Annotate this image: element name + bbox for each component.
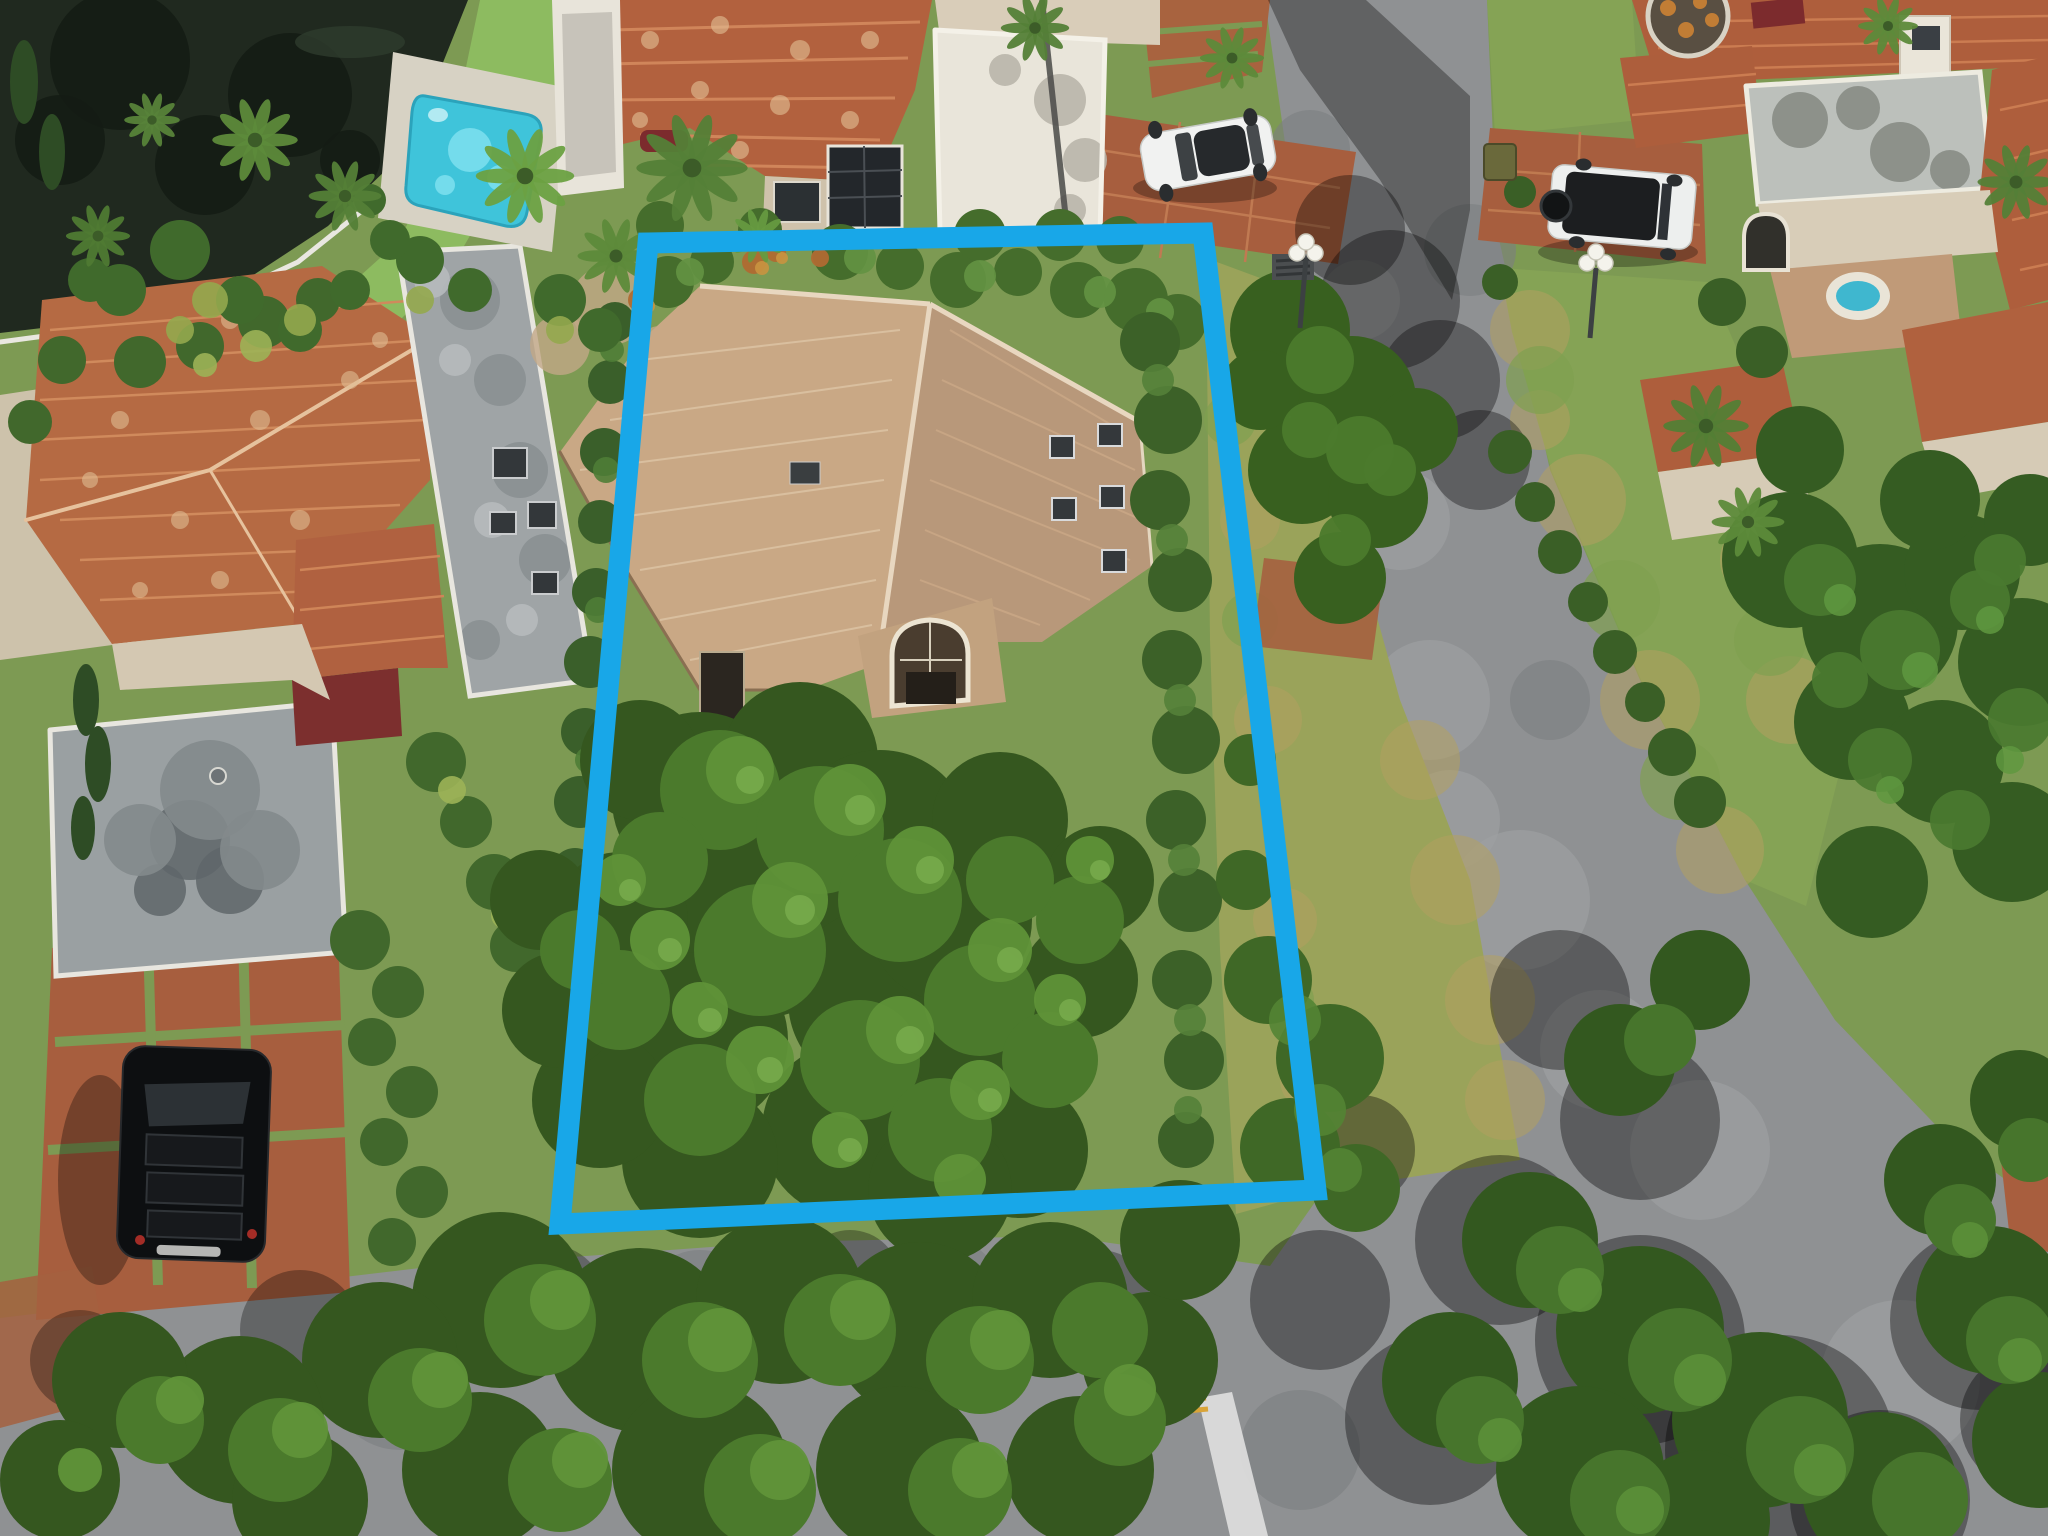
trash-bin <box>1484 144 1516 180</box>
black-suv-windshield <box>143 1078 251 1130</box>
black-suv-roof-panels <box>146 1134 244 1239</box>
right-lawn-top <box>1487 0 1640 135</box>
right-mid-tile-roof <box>1620 46 1762 148</box>
garage-roof-vent <box>210 768 226 784</box>
courtyard-spa-water <box>1836 281 1880 311</box>
lake-light-streak <box>295 26 405 58</box>
subject-front-door-shadow <box>906 672 956 704</box>
pool-house-roof-top <box>562 12 616 178</box>
pool-step <box>428 108 448 122</box>
aerial-photo <box>0 0 2048 1536</box>
bronco-spare-tire <box>1541 191 1571 221</box>
bronco-black-soft-top <box>1562 171 1661 241</box>
top-house-window <box>774 182 820 222</box>
courtyard-arch-gate <box>1744 214 1788 270</box>
macan-roof-glass <box>1192 123 1251 177</box>
subject-ac-unit <box>790 462 820 484</box>
right-tower-window <box>1912 26 1940 50</box>
aerial-photo-canvas <box>0 0 2048 1536</box>
